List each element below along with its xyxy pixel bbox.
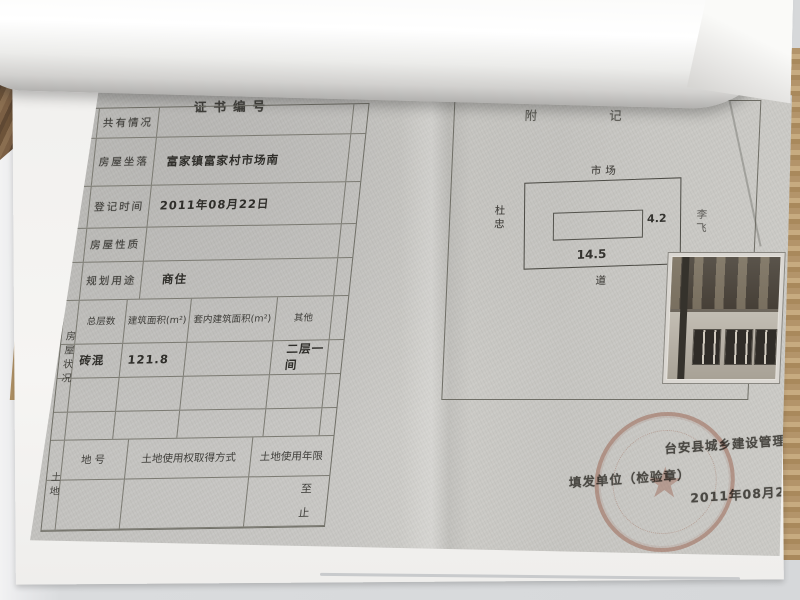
plot-building-outline <box>553 210 643 241</box>
house-header-row: 总层数 建筑面积(m²) 套内建筑面积(m²) 其他 <box>61 296 348 345</box>
field-value-planned-use: 商住 <box>140 258 338 298</box>
land-data-row: 至 止 <box>41 476 329 531</box>
plot-frontage-dimension: 14.5 <box>577 247 607 262</box>
empty-cell <box>113 411 180 439</box>
table-row: 登记时间 2011年08月22日 <box>73 182 360 229</box>
land-term-cell: 至 止 <box>244 476 329 526</box>
empty-cell <box>116 377 184 411</box>
field-label-registration-date: 登记时间 <box>87 186 151 228</box>
empty-row <box>54 374 340 413</box>
plot-parcel-outline: 4.2 14.5 <box>524 177 682 269</box>
window <box>724 329 754 365</box>
annex-section: 附 记 市场 4.2 14.5 杜忠 李飞 道 台安 <box>416 86 800 600</box>
empty-cell <box>180 375 270 410</box>
col-header-building-area: 建筑面积(m²) <box>123 299 192 343</box>
cell-structure: 砖混 <box>72 344 124 378</box>
right-strip-cell <box>342 182 360 223</box>
empty-cell <box>68 378 120 412</box>
empty-cell <box>120 478 249 529</box>
field-value-registration-date: 2011年08月22日 <box>148 182 347 226</box>
table-row: 规划用途 商住 <box>66 258 353 301</box>
window <box>754 329 778 365</box>
official-seal: ★ <box>592 412 738 552</box>
plot-west-neighbor: 杜忠 <box>491 205 508 253</box>
term-to: 止 <box>297 501 311 525</box>
right-strip-cell <box>320 408 337 436</box>
field-label-house-nature: 房屋性质 <box>84 228 148 262</box>
plot-south-label: 道 <box>595 273 607 288</box>
col-header-land-right-method: 土地使用权取得方式 <box>125 438 253 479</box>
col-header-parcel-number: 地号 <box>61 440 129 480</box>
empty-cell <box>56 480 125 530</box>
right-strip-cell <box>323 374 341 407</box>
cell-building-area: 121.8 <box>120 343 188 377</box>
right-strip-cell <box>334 258 352 295</box>
field-value-house-nature <box>144 224 342 260</box>
building-photo <box>662 252 786 384</box>
right-strip-cell <box>338 224 356 257</box>
field-label-co-ownership: 共有情况 <box>97 108 160 138</box>
term-from: 至 <box>300 477 314 501</box>
field-label-location: 房屋坐落 <box>92 138 157 186</box>
col-header-total-floors: 总层数 <box>75 300 128 344</box>
photocopy-sheet: 证书编号 共有情况 房屋坐落 富家镇富家村市场南 登记时间 2011年08月22… <box>20 78 792 556</box>
table-row: 共有情况 <box>83 104 369 139</box>
land-header-row: 地号 土地使用权取得方式 土地使用年限 <box>47 436 334 481</box>
window <box>692 329 722 365</box>
right-strip-cell <box>351 104 368 133</box>
table-row: 房屋坐落 富家镇富家村市场南 <box>78 134 366 187</box>
plot-depth-dimension: 4.2 <box>647 212 667 226</box>
table-row: 房屋性质 <box>70 224 356 263</box>
cell-inner-area <box>184 341 274 376</box>
empty-cell <box>65 412 116 440</box>
right-strip-cell <box>326 340 344 373</box>
field-label-planned-use: 规划用途 <box>80 262 144 300</box>
star-icon: ★ <box>596 416 734 548</box>
empty-cell <box>177 409 266 438</box>
field-value-location: 富家镇富家村市场南 <box>152 135 351 185</box>
cell-other: 二层一间 <box>270 340 330 374</box>
photographed-binder-scene: 证书编号 共有情况 房屋坐落 富家镇富家村市场南 登记时间 2011年08月22… <box>0 0 800 600</box>
empty-cell <box>266 374 326 408</box>
col-header-inner-area: 套内建筑面积(m²) <box>187 297 278 341</box>
field-value-co-ownership <box>157 104 354 137</box>
col-header-land-use-term: 土地使用年限 <box>249 436 333 476</box>
house-data-row: 砖混 121.8 二层一间 <box>57 340 343 379</box>
plot-east-neighbor: 李飞 <box>693 209 710 257</box>
col-header-other: 其他 <box>274 296 335 340</box>
rolled-page-corner <box>687 0 794 103</box>
registration-form-table: 共有情况 房屋坐落 富家镇富家村市场南 登记时间 2011年08月22日 房屋性… <box>40 103 369 532</box>
plot-north-neighbor: 市场 <box>570 163 641 178</box>
right-strip-cell <box>330 296 349 339</box>
empty-cell <box>263 408 322 436</box>
